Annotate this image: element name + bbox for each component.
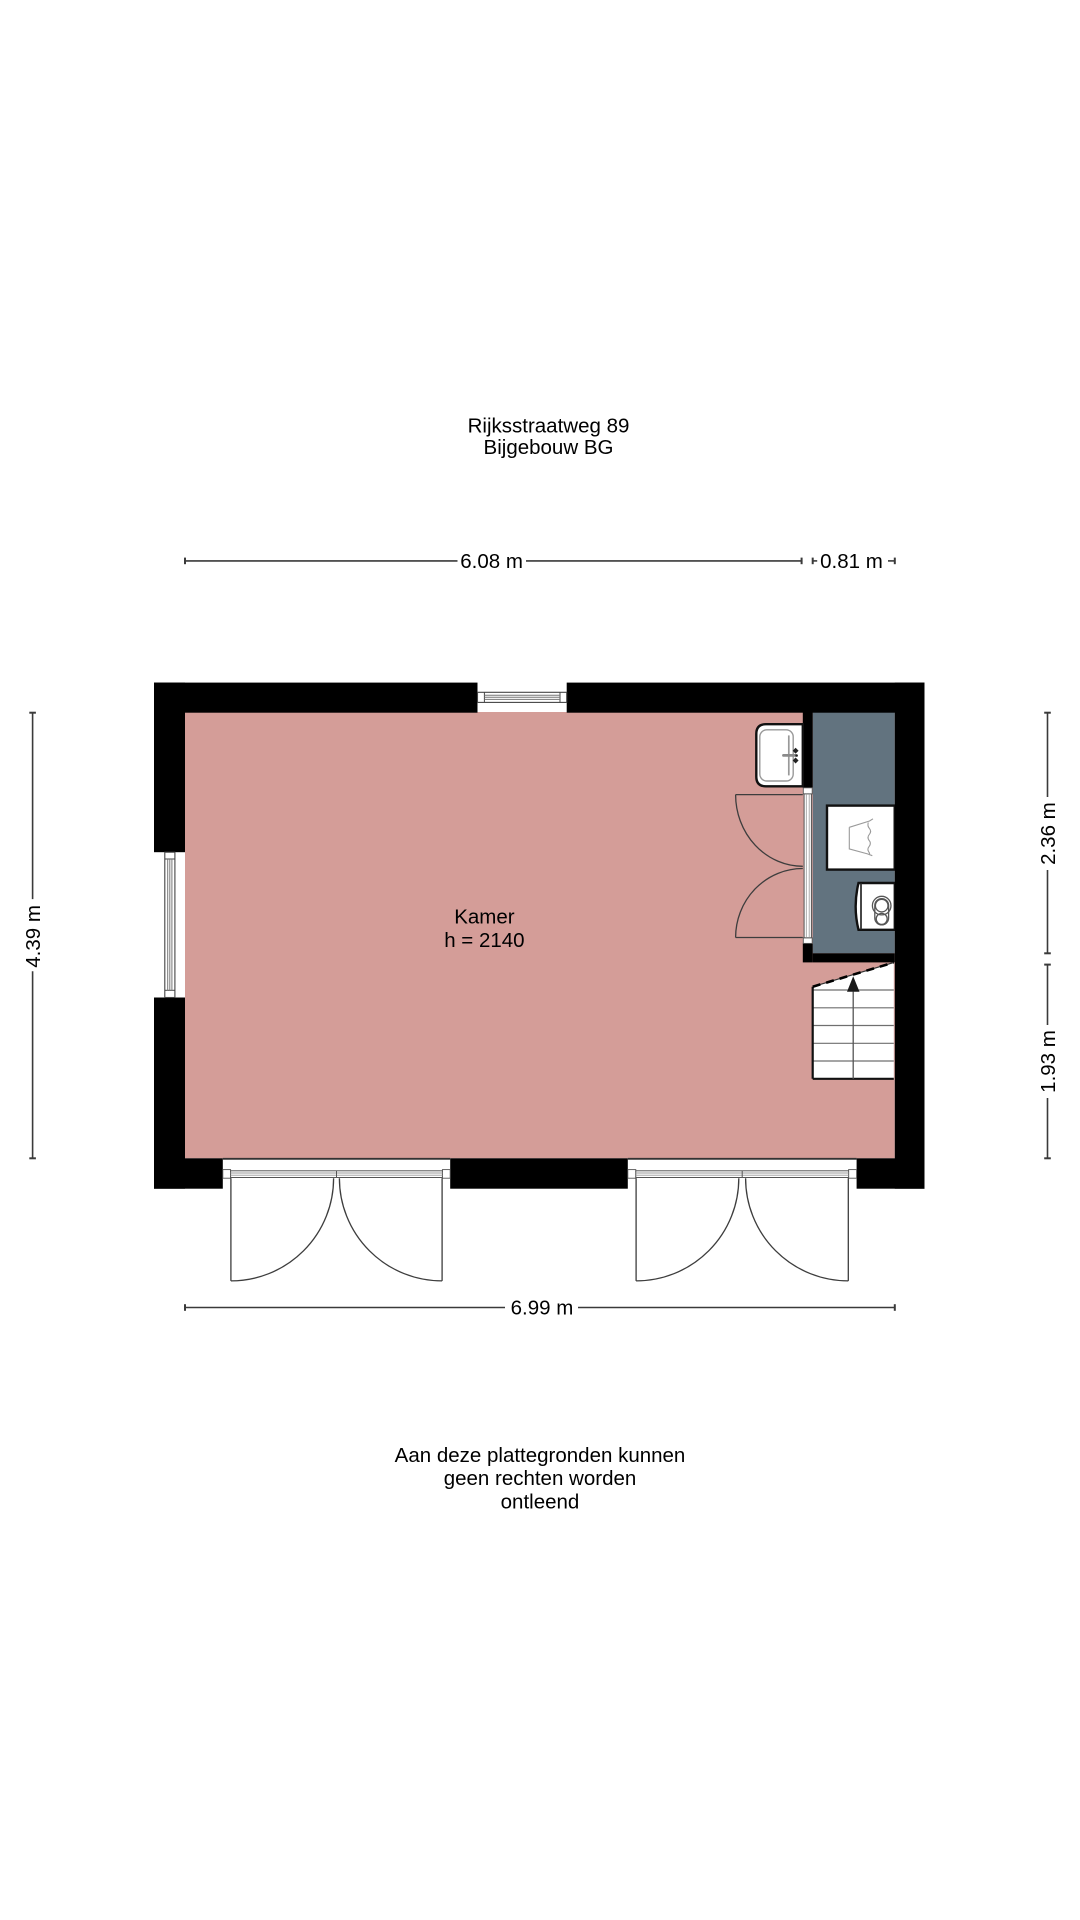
svg-text:4.39 m: 4.39 m: [22, 905, 45, 968]
svg-text:2.36 m: 2.36 m: [1037, 802, 1060, 865]
svg-text:Kamer: Kamer: [454, 905, 515, 928]
svg-text:1.93 m: 1.93 m: [1037, 1030, 1060, 1093]
svg-text:Aan deze plattegronden kunnen: Aan deze plattegronden kunnen: [395, 1444, 686, 1467]
svg-text:ontleend: ontleend: [501, 1490, 580, 1513]
svg-text:Rijksstraatweg 89: Rijksstraatweg 89: [468, 414, 630, 437]
svg-text:geen rechten worden: geen rechten worden: [444, 1467, 637, 1490]
svg-text:6.08 m: 6.08 m: [460, 550, 523, 573]
svg-text:6.99 m: 6.99 m: [511, 1297, 574, 1320]
svg-text:h = 2140: h = 2140: [444, 929, 524, 952]
svg-text:0.81 m: 0.81 m: [820, 550, 883, 573]
svg-text:Bijgebouw BG: Bijgebouw BG: [484, 436, 614, 459]
